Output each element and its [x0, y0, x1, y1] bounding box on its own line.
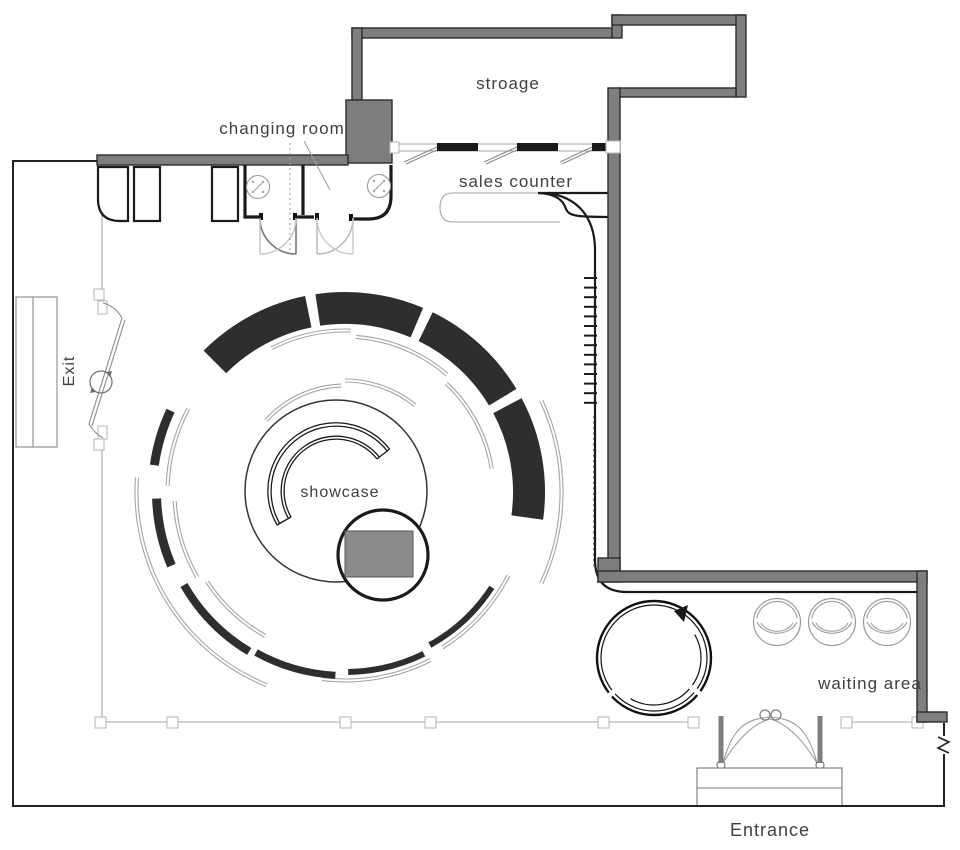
column-tab: [167, 717, 178, 728]
display-arc: [428, 586, 494, 648]
label-storage: stroage: [476, 74, 540, 93]
floor-plan-drawing: stroage changing room sales counter show…: [0, 0, 960, 850]
changing-stool: [368, 175, 391, 198]
door-pocket: [606, 141, 620, 153]
column-tab: [340, 717, 351, 728]
waiting-bottom-stub-wall: [917, 712, 947, 722]
storage-bottom-wall: [618, 88, 736, 97]
waiting-chair: [864, 599, 911, 646]
display-arc: [419, 312, 517, 405]
display-arc: [152, 498, 176, 567]
salesarea-right-wall: [608, 88, 620, 572]
shelf-outline: [16, 297, 57, 447]
waiting-right-wall: [917, 571, 927, 722]
changing-room-divider-wall: [294, 165, 314, 217]
column-tab: [688, 717, 699, 728]
exit-frame-notch: [98, 426, 107, 439]
display-arc: [169, 409, 190, 486]
column-tab: [598, 717, 609, 728]
rack-outer-circle: [597, 601, 711, 715]
wardrobe-unit: [134, 167, 160, 221]
display-arc: [204, 296, 312, 373]
floor-plan-page: stroage changing room sales counter show…: [0, 0, 960, 850]
sales-counter: [440, 193, 917, 592]
waiting-chairs: [754, 599, 911, 646]
entrance-mat: [697, 768, 842, 806]
exit-frame-notch: [94, 439, 104, 450]
waiting-chair: [754, 599, 801, 646]
counter-outer-curve: [547, 193, 917, 592]
rotating-rack: [597, 601, 711, 715]
label-changing-room: changing room: [219, 119, 344, 138]
entrance-pivot: [760, 710, 770, 720]
waiting-top-wall: [598, 571, 927, 582]
wardrobe-fixtures: [98, 167, 238, 221]
storage-left-wall: [352, 28, 362, 100]
display-arc: [315, 292, 423, 337]
display-arc: [445, 385, 490, 470]
storage-right-wall: [736, 15, 746, 97]
wardrobe-unit: [98, 167, 128, 221]
label-exit: Exit: [61, 356, 78, 387]
column-tab: [425, 717, 436, 728]
display-arc: [150, 409, 175, 466]
exit-frame-notch: [98, 301, 107, 314]
waiting-chair: [809, 599, 856, 646]
entrance-curtain: [723, 717, 817, 763]
door-pocket: [390, 142, 399, 153]
display-arc: [173, 501, 196, 578]
label-showcase: showcase: [300, 484, 379, 501]
storage-upper-wall: [612, 15, 745, 25]
wardrobe-unit: [212, 167, 238, 221]
storage-top-wall: [352, 28, 612, 38]
display-arc: [348, 651, 425, 675]
entrance-doors: [697, 710, 842, 806]
sliding-panel: [517, 143, 558, 151]
exit-frame-notch: [94, 289, 104, 300]
storage-sliding-doors: [390, 141, 620, 164]
column-tab: [95, 717, 106, 728]
counter-low-section: [440, 193, 560, 222]
site-boundary: [13, 161, 951, 806]
exit-pivot-door: [89, 303, 125, 438]
display-arc: [254, 649, 335, 678]
label-entrance: Entrance: [730, 820, 810, 840]
sliding-leaf-open: [404, 147, 594, 164]
entrance-pivot: [771, 710, 781, 720]
label-sales-counter: sales counter: [459, 172, 573, 191]
display-arc: [181, 583, 252, 655]
boundary-line: [13, 161, 944, 806]
sliding-track: [396, 144, 608, 151]
changing-room-corner-block: [346, 100, 392, 163]
exit-rotation-icon: [90, 371, 112, 393]
retail-top-wall: [97, 155, 348, 165]
display-arc: [493, 398, 545, 520]
label-waiting-area: waiting area: [817, 674, 922, 693]
column-tab: [841, 717, 852, 728]
exit-side-shelf: [16, 297, 57, 447]
entrance-post: [721, 716, 820, 763]
changing-stool: [247, 176, 270, 199]
sliding-panel: [437, 143, 478, 151]
showcase-display-block: [345, 531, 413, 577]
